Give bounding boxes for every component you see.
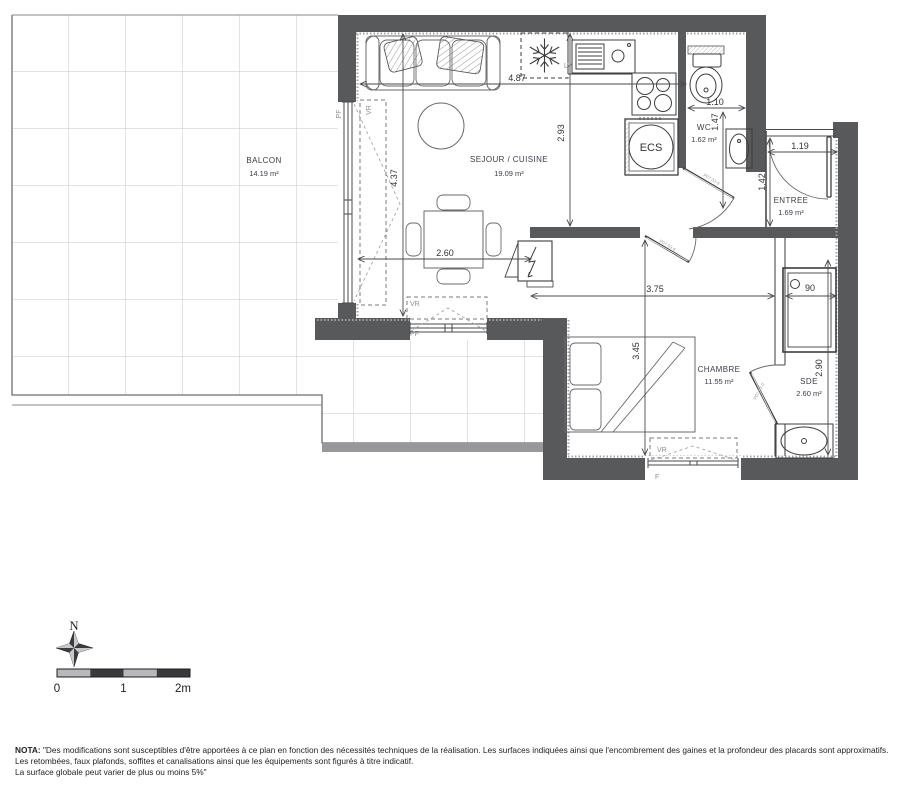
nota-line-2: Les retombées, faux plafonds, soffites e… <box>15 756 913 767</box>
dim-sejour-width: 2.60 <box>436 248 454 258</box>
chair <box>406 223 421 256</box>
dim-entree-depth: 1.42 <box>757 173 767 191</box>
dining-table <box>406 195 501 284</box>
stove <box>632 73 676 120</box>
counter-edge <box>568 32 632 74</box>
sink <box>572 40 635 73</box>
room-area-balcon: 14.19 m² <box>249 169 279 178</box>
window-left-pf <box>342 100 400 305</box>
room-area-sejour: 19.09 m² <box>494 169 524 178</box>
room-label-sde: SDE <box>800 377 818 386</box>
round-table <box>418 103 464 149</box>
pillow <box>570 343 601 385</box>
wc-fixtures <box>688 46 752 168</box>
vent-grille <box>688 46 724 54</box>
window-south-label: PF <box>410 331 419 338</box>
chair <box>437 269 470 284</box>
balcony <box>12 15 543 452</box>
dim-wc-depth: 1.47 <box>710 113 720 131</box>
window-chambre-label: F <box>655 474 659 481</box>
wall-east <box>838 122 858 480</box>
nota-text: NOTA: "Des modifications sont susceptibl… <box>15 745 913 777</box>
toilet <box>690 54 722 103</box>
wall-north <box>338 15 766 32</box>
window-swing <box>354 104 400 301</box>
dim-chambre-width: 3.75 <box>646 284 664 294</box>
pillow <box>570 389 601 430</box>
wall-wc-east <box>746 32 766 172</box>
bed <box>565 337 695 432</box>
dishwasher-label: LV <box>564 63 572 70</box>
partition-north-chambre-sde <box>693 227 838 238</box>
room-label-sejour: SEJOUR / CUISINE <box>470 155 548 164</box>
thin-partitions <box>766 130 836 457</box>
compass: N <box>56 619 93 667</box>
dim-sejour-depth: 4.37 <box>389 169 399 187</box>
scale-0: 0 <box>54 683 60 695</box>
wall-entree-corner <box>833 122 858 138</box>
shutter-south-label: VR <box>410 301 420 308</box>
wall-chambre-west <box>543 318 567 458</box>
window-left-label: PF <box>336 110 343 119</box>
electrical-panel <box>505 241 553 287</box>
room-label-chambre: CHAMBRE <box>698 365 741 374</box>
balcony-tiles <box>12 15 338 395</box>
room-area-wc: 1.62 m² <box>691 135 717 144</box>
snowflake-icon <box>528 39 561 73</box>
dim-wc-width: 1.10 <box>706 97 724 107</box>
wall-sejour-south-left <box>315 318 410 340</box>
nota-line-1: NOTA: "Des modifications sont susceptibl… <box>15 745 913 756</box>
sofa <box>366 36 500 90</box>
scale-bar: 0 1 2m <box>54 669 191 695</box>
shutter-left-label: VR <box>366 105 373 115</box>
scale-2m: 2m <box>175 683 191 695</box>
room-area-entree: 1.69 m² <box>778 208 804 217</box>
dim-kitchen-depth: 2.93 <box>556 124 566 142</box>
wall-west-upper <box>338 15 356 102</box>
partition-kitchen-wc <box>678 32 686 168</box>
room-area-sde: 2.60 m² <box>796 389 822 398</box>
room-area-chambre: 11.55 m² <box>704 377 734 386</box>
nota-title: NOTA: <box>15 745 41 755</box>
window-chambre-f <box>645 438 741 482</box>
dim-chambre-depth: 3.45 <box>631 342 641 360</box>
dim-shower-width: 90 <box>805 283 815 293</box>
floor-plan-drawing: BALCON 14.19 m² SEJOUR / CUISINE 19.09 m… <box>0 0 922 800</box>
shutter-box-left <box>360 100 386 305</box>
dim-sde-depth: 2.90 <box>814 359 824 377</box>
chair <box>437 195 470 210</box>
shutter-chambre-label: VR <box>657 447 667 454</box>
room-label-entree: ENTREE <box>774 196 809 205</box>
water-heater-label: ECS <box>640 142 663 154</box>
partition-sejour-chambre <box>530 227 640 238</box>
room-label-wc: WC <box>697 123 711 132</box>
balcony-slab-edge <box>322 443 543 452</box>
pillow <box>436 36 484 74</box>
chair <box>486 223 501 256</box>
nota-line-3: La surface globale peut varier de plus o… <box>15 767 913 778</box>
room-label-balcon: BALCON <box>246 156 281 165</box>
duvet-fold <box>601 342 685 432</box>
entree-door-head <box>766 130 836 137</box>
scale-1: 1 <box>120 683 126 695</box>
dim-kitchen-width: 4.87 <box>508 73 526 83</box>
dim-entree-width: 1.19 <box>791 141 809 151</box>
floor-plan-page: BALCON 14.19 m² SEJOUR / CUISINE 19.09 m… <box>0 0 922 800</box>
balcony-tiles-band <box>322 340 543 443</box>
